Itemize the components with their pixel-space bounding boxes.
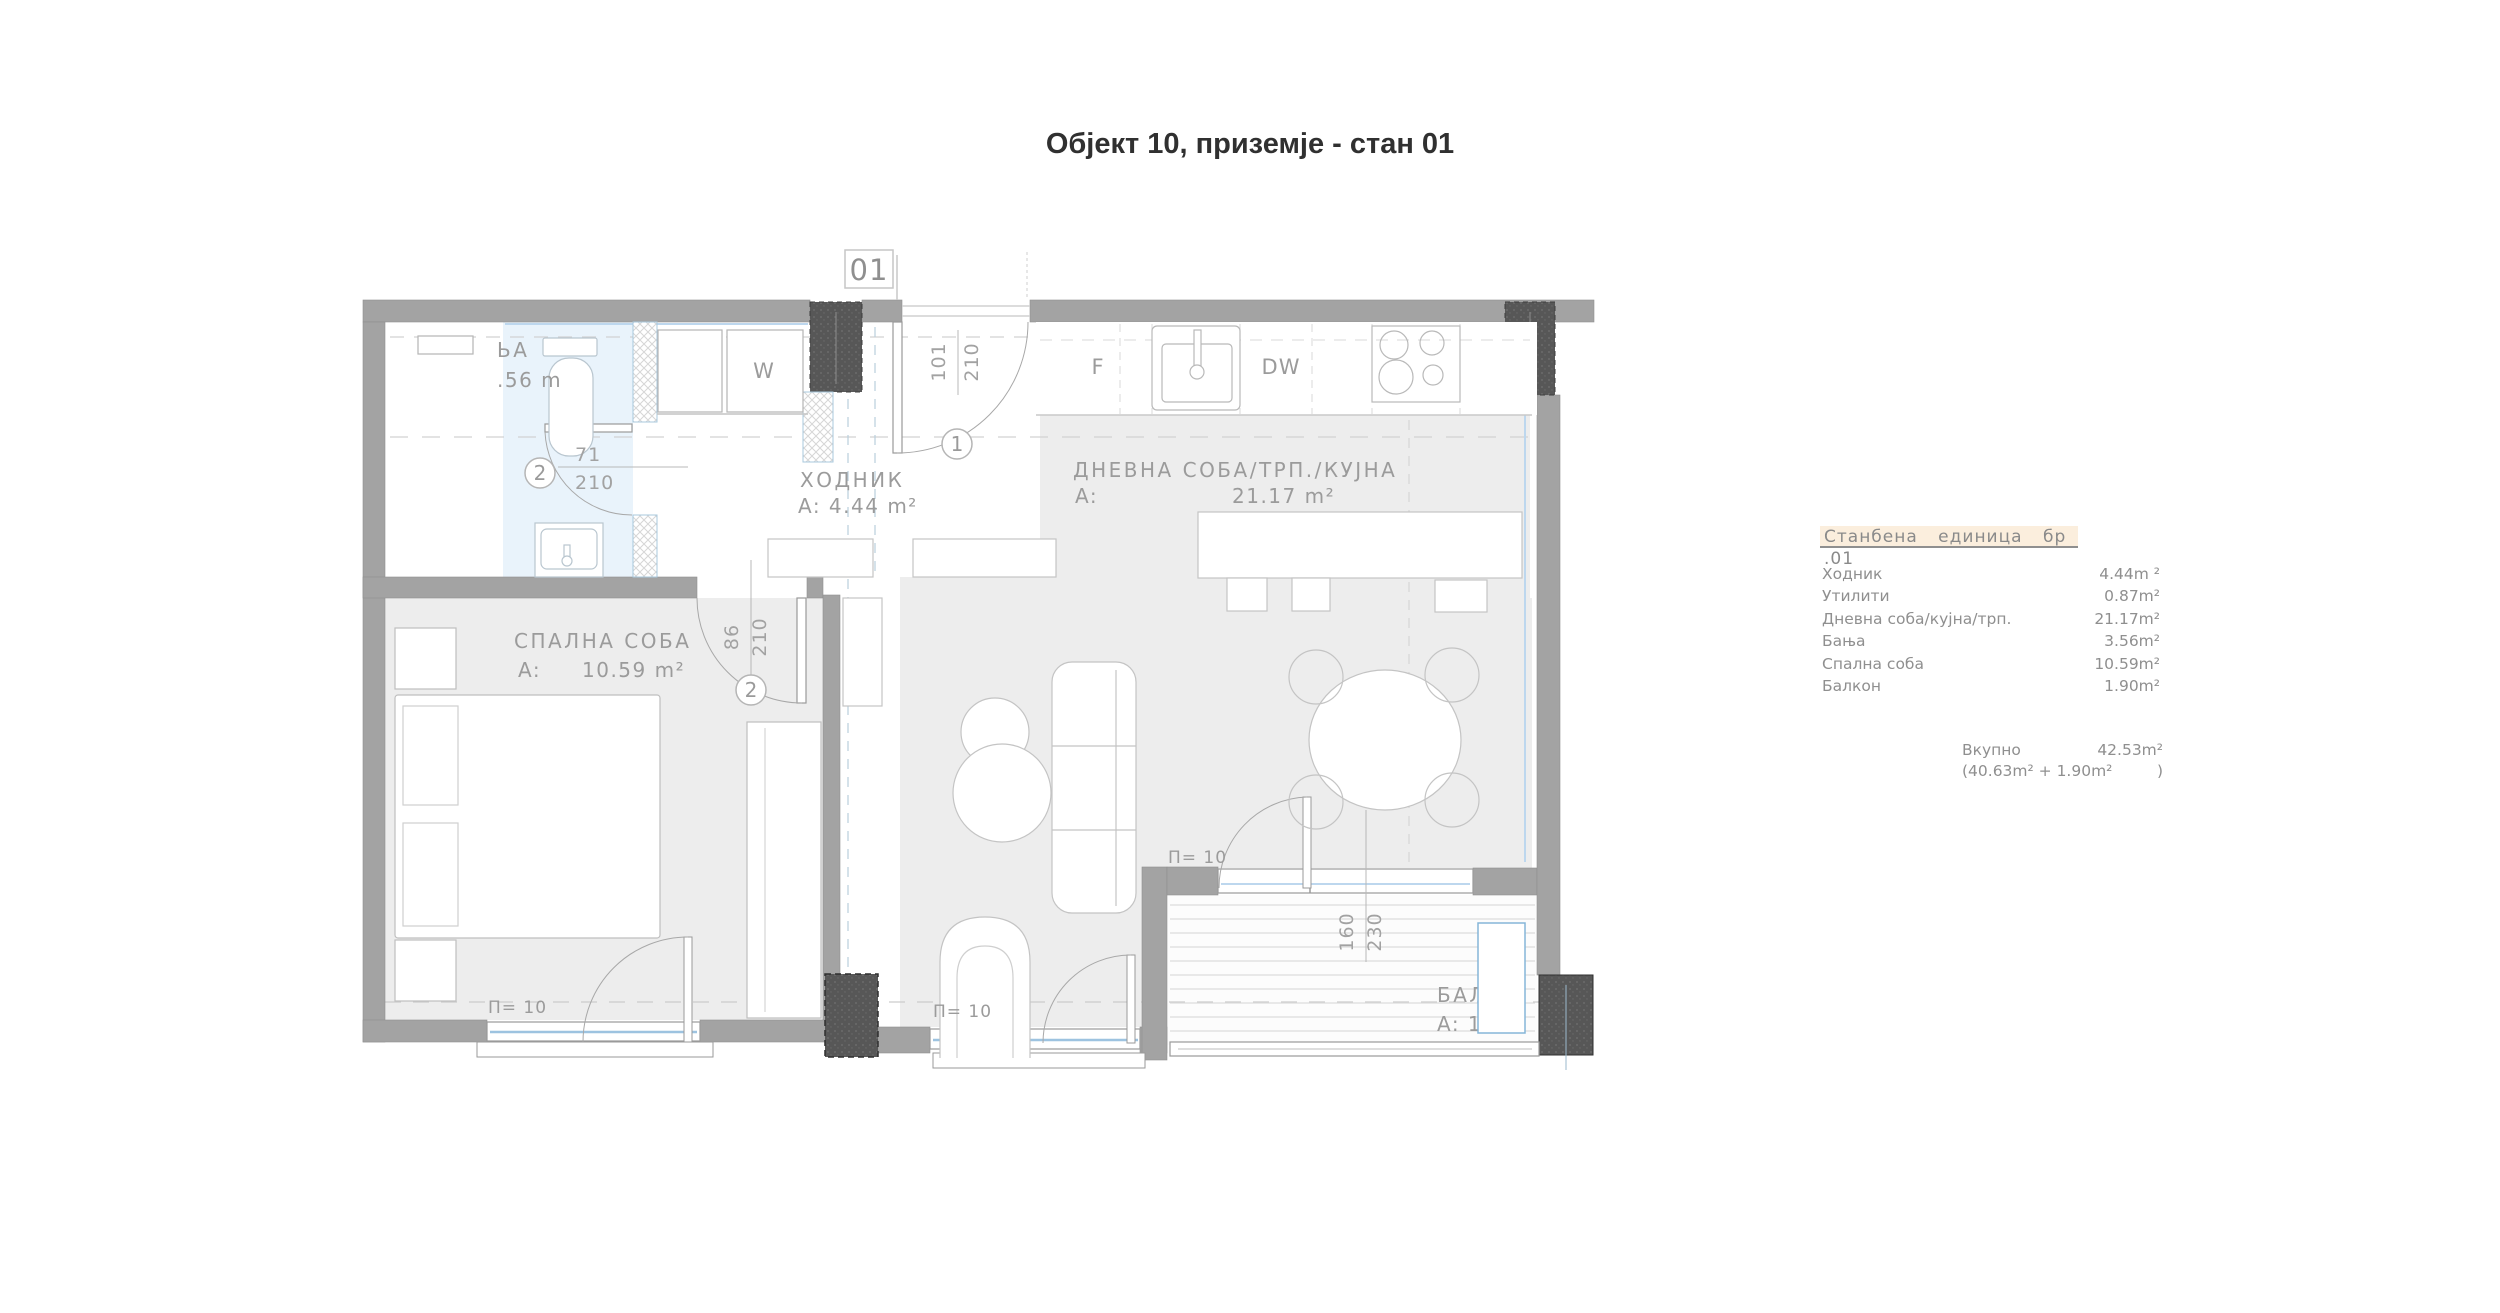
legend-table: Ходник 4.44m ² Утилити 0.87m² Дневна соб… [1822, 563, 2160, 697]
legend-row-label: Бања [1822, 630, 1866, 652]
window-mark-living: П= 10 [933, 1002, 992, 1022]
dim-height: 210 [749, 617, 771, 656]
living-area-prefix: A: [1075, 484, 1098, 508]
legend-row-value: 1.90m² [2104, 675, 2160, 697]
legend-row-value: 3.56m² [2104, 630, 2160, 652]
wall-segment [878, 1027, 930, 1053]
bedroom-area: 10.59 m² [582, 658, 685, 682]
balcony-planter [1478, 923, 1525, 1033]
legend-row: Ходник 4.44m ² [1822, 563, 2160, 585]
dim-height: 210 [961, 342, 983, 381]
wall-segment [1167, 867, 1218, 895]
unit-badge: 01 [850, 253, 889, 287]
legend-row: Утилити 0.87m² [1822, 585, 2160, 607]
legend-row-value: 0.87m² [2104, 585, 2160, 607]
wall-segment [807, 577, 823, 598]
wall-segment [1473, 868, 1537, 895]
nightstand [395, 940, 456, 1001]
coffee-table [953, 744, 1051, 842]
utility-niche: W [657, 330, 808, 414]
dim-height: 230 [1364, 912, 1386, 951]
pillow [403, 823, 458, 926]
wardrobe [747, 722, 821, 1018]
wall-segment [363, 322, 385, 1042]
legend-row-label: Ходник [1822, 563, 1882, 585]
legend-row-value: 21.17m² [2094, 608, 2160, 630]
dim-width: 71 [575, 444, 601, 466]
entry-door-dimension: 101 210 1 [928, 330, 983, 459]
sofa [1052, 662, 1136, 913]
wall-segment [823, 595, 840, 1023]
living-area: 21.17 m² [1232, 484, 1335, 508]
column [825, 974, 878, 1057]
legend-row-value: 10.59m² [2094, 653, 2160, 675]
legend-row: Балкон 1.90m² [1822, 675, 2160, 697]
balcony-railing [1170, 1042, 1539, 1056]
sink-tap [1194, 330, 1201, 366]
legend-row-label: Утилити [1822, 585, 1890, 607]
window-frame [1218, 869, 1473, 893]
bath-sink-drain [562, 556, 572, 566]
door-leaf [1127, 955, 1135, 1043]
wall-segment [1142, 867, 1167, 1060]
window-mark-bedroom: П= 10 [488, 998, 547, 1018]
bookshelf [843, 598, 882, 706]
dining-table [1309, 670, 1461, 810]
legend-row-label: Балкон [1822, 675, 1881, 697]
hallway-area: A: 4.44 m² [798, 494, 918, 518]
storage-shelf [418, 336, 473, 354]
chair [1227, 578, 1267, 611]
legend-header: Станбена единица бр .01 [1820, 526, 2078, 548]
legend-row-value: 4.44m ² [2099, 563, 2160, 585]
legend-row-label: Спална соба [1822, 653, 1924, 675]
sink-drain [1190, 365, 1204, 379]
floorplan-page: Објект 10, приземје - стан 01 [0, 0, 2500, 1313]
hallway-cabinet [913, 539, 1056, 577]
wall-segment [1537, 395, 1560, 975]
legend-row: Бања 3.56m² [1822, 630, 2160, 652]
window-mark-balcony: П= 10 [1168, 848, 1227, 868]
chair [1292, 578, 1330, 611]
legend-total: Вкупно 42.53m² (40.63m² + 1.90m² ) [1962, 740, 2163, 782]
legend-row: Спална соба 10.59m² [1822, 653, 2160, 675]
bathroom-label-fragment: ЬА [497, 338, 529, 362]
wall-segment [700, 1020, 830, 1042]
legend-total-line: Вкупно 42.53m² [1962, 740, 2163, 761]
utility-cabinet [658, 330, 722, 412]
washer-label: W [753, 359, 775, 383]
door-marker: 2 [534, 461, 547, 485]
fridge-label: F [1091, 355, 1104, 379]
kitchen-sink-symbol [1152, 326, 1240, 410]
door-marker: 1 [951, 432, 964, 456]
legend-breakdown: (40.63m² + 1.90m² [1962, 761, 2112, 782]
bathroom-area-fragment: .56 m [497, 368, 562, 392]
legend-breakdown-line: (40.63m² + 1.90m² ) [1962, 761, 2163, 782]
window-sill [477, 1042, 713, 1057]
legend-total-value: 42.53m² [2097, 740, 2163, 761]
nightstand [395, 628, 456, 689]
hallway-label: ХОДНИК [800, 468, 904, 492]
wall-segment [862, 300, 902, 322]
kitchen: F DW [1036, 322, 1537, 415]
bath-sink-tap [564, 545, 570, 557]
door-leaf [893, 322, 902, 453]
dim-width: 101 [928, 342, 950, 381]
legend-breakdown-close: ) [2157, 761, 2163, 782]
hallway-cabinet [768, 539, 873, 577]
pillow [403, 706, 458, 805]
wall-segment [363, 300, 810, 322]
shaft [633, 322, 657, 422]
dim-width: 86 [721, 624, 743, 650]
wall-segment [363, 1020, 487, 1042]
tv-cabinet [1198, 512, 1522, 578]
toilet-tank [543, 338, 597, 356]
living-label: ДНЕВНА СОБА/ТРП./КУЈНА [1073, 458, 1397, 482]
door-marker: 2 [745, 678, 758, 702]
shaft [803, 392, 833, 462]
chair [1435, 580, 1487, 612]
bedroom-area-prefix: A: [518, 658, 541, 682]
door-leaf [684, 937, 692, 1042]
door-leaf [1303, 797, 1311, 888]
dim-height: 210 [575, 472, 614, 494]
storage-room [418, 336, 473, 354]
door-leaf [797, 598, 806, 703]
legend-row: Дневна соба/кујна/трп. 21.17m² [1822, 608, 2160, 630]
legend-total-label: Вкупно [1962, 740, 2021, 761]
armchair [940, 917, 1030, 1058]
bedroom-label: СПАЛНА СОБА [514, 629, 691, 653]
shaft [633, 515, 657, 577]
legend-row-label: Дневна соба/кујна/трп. [1822, 608, 2011, 630]
wall-segment [363, 577, 697, 598]
dim-width: 160 [1336, 912, 1358, 951]
unit-badge-group: 01 [845, 250, 1027, 300]
dishwasher-label: DW [1262, 355, 1301, 379]
